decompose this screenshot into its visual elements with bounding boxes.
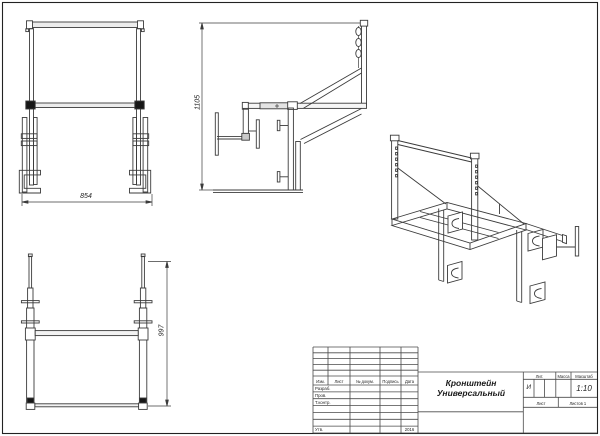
tb-scale-label: Масштаб xyxy=(571,373,597,380)
rear-view-right-post xyxy=(134,254,152,402)
side-view-arm xyxy=(242,102,366,110)
tb-row-approver: Утв. xyxy=(315,427,323,434)
dimension-854-label: 854 xyxy=(70,193,102,200)
iso-rear-leg xyxy=(517,230,545,304)
rear-view-crossbar xyxy=(35,331,138,336)
tb-col-list: Лист xyxy=(328,378,350,385)
side-view-lower-member xyxy=(213,108,303,193)
tb-sheet-label: Лист xyxy=(524,400,559,407)
tb-col-date: Дата xyxy=(401,378,418,385)
tb-lit-label: Лит. xyxy=(524,373,556,380)
tb-year: 2016 xyxy=(401,427,418,434)
rear-view-feet xyxy=(26,398,147,409)
tb-lit-value: И xyxy=(524,384,535,391)
dimension-997-label: 997 xyxy=(158,315,165,345)
rear-view-left-post xyxy=(21,254,39,402)
front-view-frame xyxy=(26,21,144,185)
iso-frame xyxy=(392,168,526,250)
page-border xyxy=(3,3,598,434)
side-view xyxy=(199,20,368,192)
side-view-post xyxy=(360,20,367,105)
tb-row-checker: Пров. xyxy=(315,393,326,400)
front-view xyxy=(19,21,152,206)
tb-row-developer: Разраб. xyxy=(315,386,330,393)
tb-scale-value: 1:10 xyxy=(571,384,597,393)
tb-mass-label: Масса xyxy=(556,373,571,380)
tb-sheets-label: Листов 1 xyxy=(558,400,597,407)
iso-left-post xyxy=(390,135,399,219)
tb-title-line2: Универсальный xyxy=(419,389,523,399)
isometric-view xyxy=(390,135,578,303)
tb-col-sign: Подпись xyxy=(380,378,401,385)
dimension-1105-label: 1105 xyxy=(195,88,202,118)
rear-view xyxy=(21,254,171,409)
tb-col-izm: Изм. xyxy=(313,378,328,385)
chain-hook xyxy=(356,26,361,68)
iso-top-rail xyxy=(398,141,472,163)
tb-row-tcontrol: Т.контр. xyxy=(315,400,331,407)
side-view-wall-clamp xyxy=(215,108,259,155)
drawing-sheet: 854 1105 997 Изм. Лист № докум. Подпись … xyxy=(0,0,600,436)
tb-col-doc: № докум. xyxy=(350,378,380,385)
drawing-linework xyxy=(0,0,600,436)
